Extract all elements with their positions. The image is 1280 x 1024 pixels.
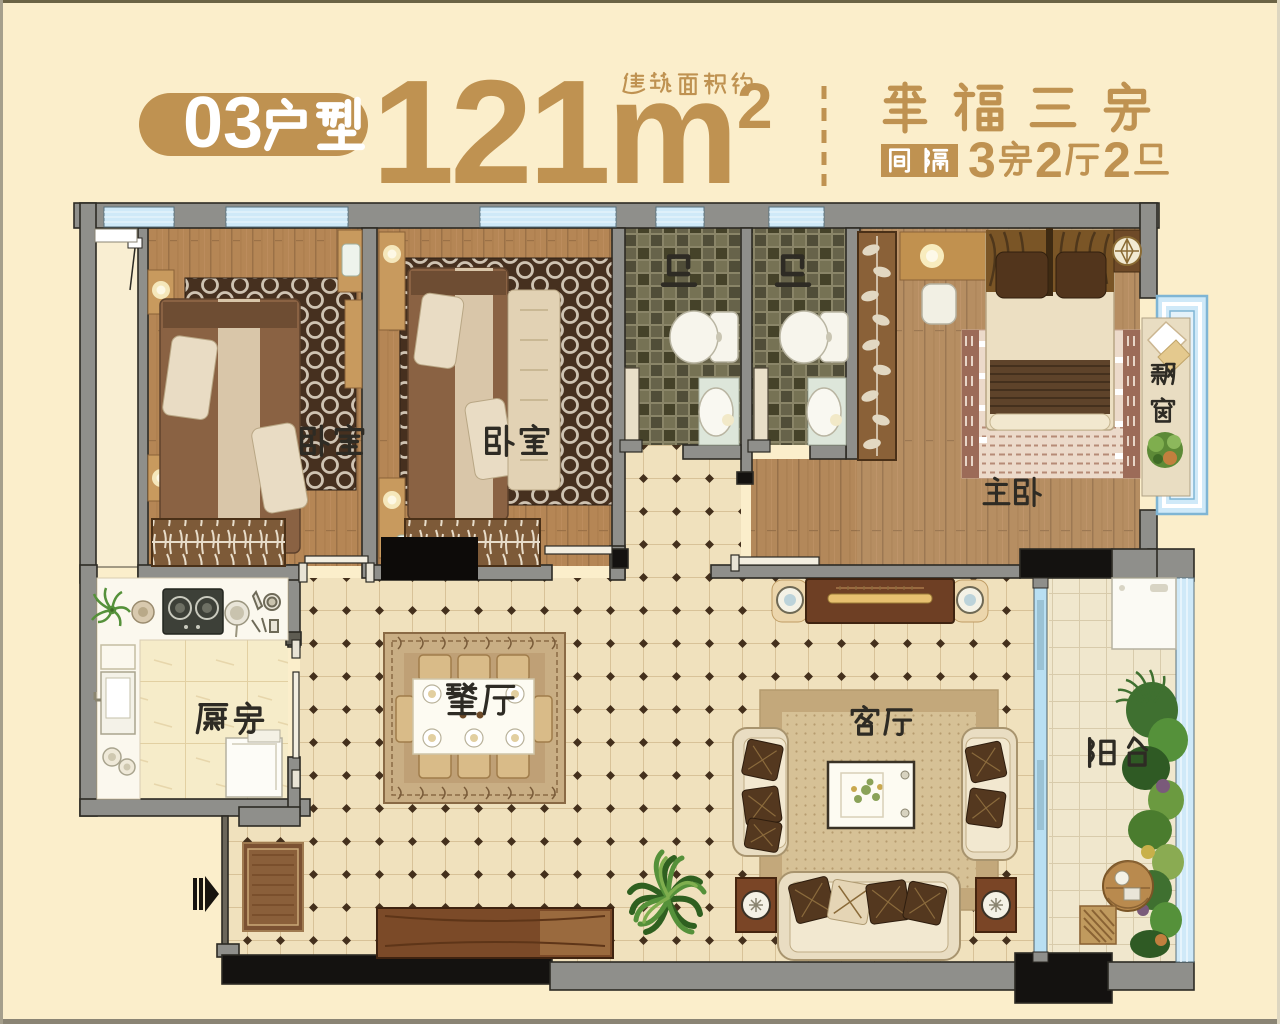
svg-text:2: 2 (1035, 132, 1063, 188)
svg-text:3: 3 (968, 132, 996, 188)
svg-text:2: 2 (737, 70, 773, 142)
svg-text:03: 03 (183, 83, 263, 163)
svg-text:2: 2 (1103, 132, 1131, 188)
